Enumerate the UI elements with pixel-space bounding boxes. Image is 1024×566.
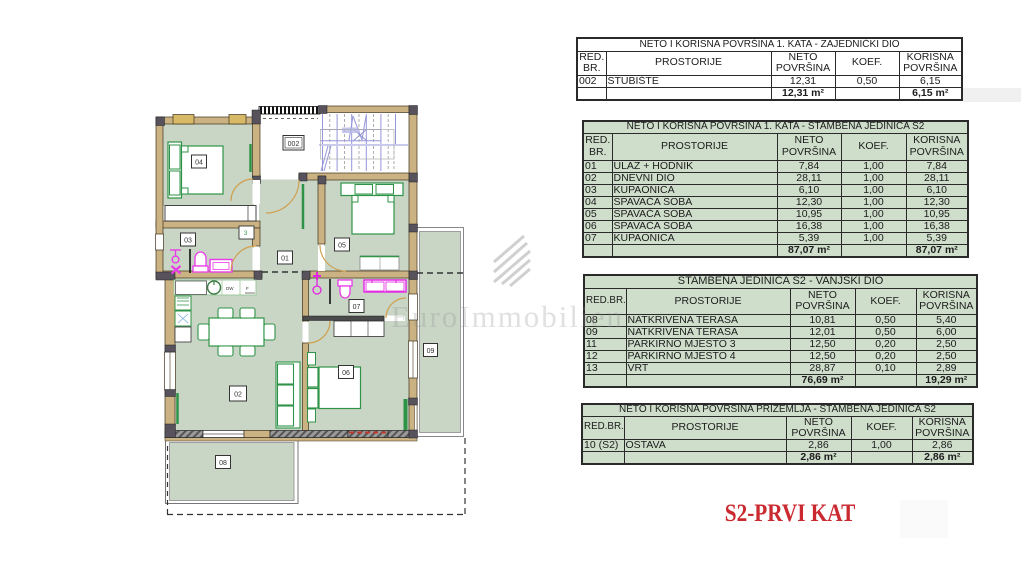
svg-text:002: 002 (288, 141, 300, 148)
svg-text:03: 03 (184, 238, 192, 245)
svg-text:04: 04 (195, 160, 203, 167)
svg-text:08: 08 (219, 460, 227, 467)
svg-text:01: 01 (281, 256, 289, 263)
svg-text:F: F (246, 286, 249, 291)
svg-text:02: 02 (234, 392, 242, 399)
svg-text:05: 05 (338, 243, 346, 250)
svg-text:DW: DW (226, 286, 234, 291)
svg-text:06: 06 (342, 370, 350, 377)
svg-text:07: 07 (353, 304, 361, 311)
svg-text:09: 09 (427, 348, 435, 355)
